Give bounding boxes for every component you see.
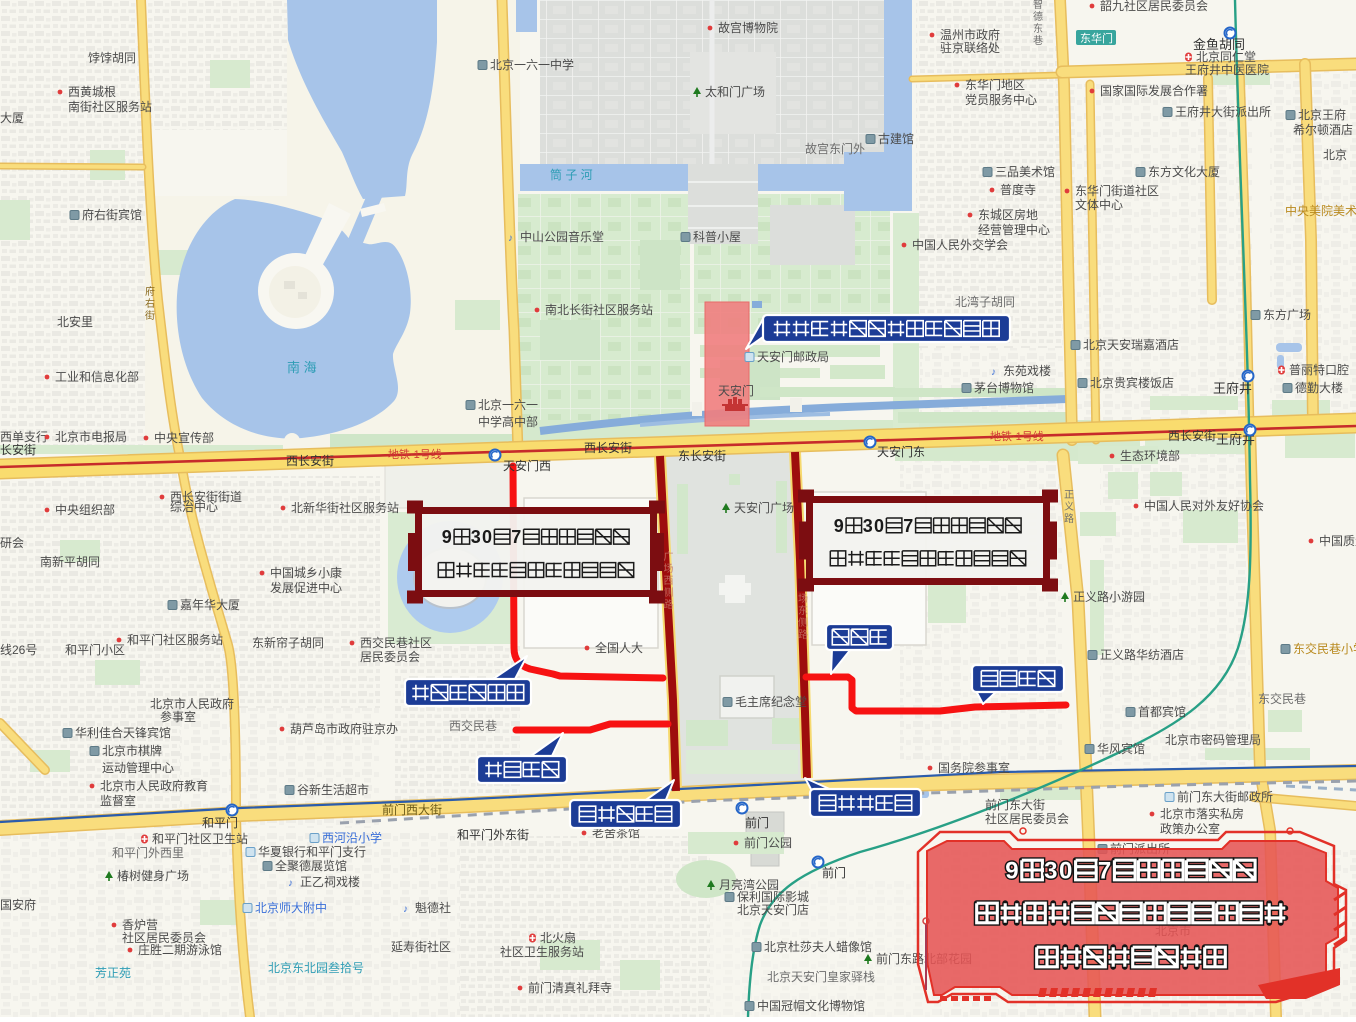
svg-text:3: 3 — [471, 527, 481, 547]
svg-text:♪: ♪ — [508, 233, 513, 244]
svg-text:路: 路 — [1064, 512, 1074, 525]
svg-text:工业和信息化部: 工业和信息化部 — [55, 369, 139, 384]
svg-text:庄胜二期游泳馆: 庄胜二期游泳馆 — [138, 942, 222, 957]
svg-text:西黄城根: 西黄城根 — [68, 85, 116, 99]
svg-text:驻京联络处: 驻京联络处 — [940, 40, 1000, 55]
svg-text:国家国际发展合作署: 国家国际发展合作署 — [1100, 83, 1208, 98]
svg-text:前门东大街: 前门东大街 — [985, 797, 1045, 812]
svg-text:西长安街: 西长安街 — [584, 440, 632, 455]
svg-text:王府井大街派出所: 王府井大街派出所 — [1175, 104, 1271, 119]
svg-text:西交民巷社区: 西交民巷社区 — [360, 635, 432, 650]
svg-text:王府井: 王府井 — [1213, 381, 1252, 396]
svg-text:居民委员会: 居民委员会 — [360, 650, 420, 664]
svg-text:华风宾馆: 华风宾馆 — [1097, 741, 1145, 756]
svg-text:正: 正 — [1064, 490, 1074, 501]
svg-text:故宫东门外: 故宫东门外 — [805, 141, 865, 156]
svg-text:椿树健身广场: 椿树健身广场 — [117, 868, 189, 883]
svg-text:保利国际影城: 保利国际影城 — [737, 890, 809, 904]
svg-text:北京贵宾楼饭店: 北京贵宾楼饭店 — [1090, 375, 1174, 390]
svg-text:东华门: 东华门 — [1080, 31, 1113, 45]
svg-text:天安门邮政局: 天安门邮政局 — [757, 349, 829, 364]
svg-text:毛主席纪念堂: 毛主席纪念堂 — [735, 694, 807, 709]
svg-text:三品美术馆: 三品美术馆 — [995, 164, 1055, 179]
svg-text:线26号: 线26号 — [0, 643, 37, 657]
svg-text:和平门外东街: 和平门外东街 — [457, 827, 529, 842]
svg-text:东城区房地: 东城区房地 — [978, 207, 1038, 222]
svg-text:和平门社区服务站: 和平门社区服务站 — [127, 632, 223, 647]
svg-text:西: 西 — [664, 576, 674, 587]
svg-text:北京同仁堂: 北京同仁堂 — [1196, 50, 1256, 64]
svg-text:府: 府 — [145, 285, 155, 298]
svg-text:♪: ♪ — [288, 878, 293, 889]
svg-text:大厦: 大厦 — [0, 111, 24, 125]
svg-text:魁德社: 魁德社 — [415, 900, 451, 915]
svg-text:东华门地区: 东华门地区 — [965, 77, 1025, 92]
svg-text:南街社区服务站: 南街社区服务站 — [68, 99, 152, 114]
svg-text:北安里: 北安里 — [57, 314, 93, 329]
svg-text:中国人民对外友好协会: 中国人民对外友好协会 — [1144, 498, 1264, 513]
svg-text:饽饽胡同: 饽饽胡同 — [88, 51, 136, 65]
svg-text:前门公园: 前门公园 — [744, 835, 792, 850]
svg-text:7: 7 — [511, 527, 521, 547]
svg-text:北新华街社区服务站: 北新华街社区服务站 — [291, 500, 399, 515]
svg-text:地铁·1号线: 地铁·1号线 — [388, 447, 442, 461]
svg-text:北京: 北京 — [1323, 148, 1347, 162]
svg-text:9: 9 — [442, 527, 452, 547]
svg-text:希尔顿酒店: 希尔顿酒店 — [1293, 122, 1353, 137]
svg-text:9: 9 — [1005, 858, 1018, 885]
svg-text:和平门社区卫生站: 和平门社区卫生站 — [152, 831, 248, 846]
svg-text:北京师大附中: 北京师大附中 — [255, 900, 327, 915]
svg-text:前门西大街: 前门西大街 — [382, 802, 442, 817]
svg-text:社区居民委员会: 社区居民委员会 — [985, 811, 1069, 826]
svg-text:东: 东 — [1033, 22, 1043, 35]
svg-text:北京天安门店: 北京天安门店 — [737, 902, 809, 917]
svg-text:北火扇: 北火扇 — [540, 930, 576, 945]
svg-text:参事室: 参事室 — [160, 709, 196, 724]
svg-text:中央美院美术馆: 中央美院美术馆 — [1285, 203, 1356, 218]
svg-text:天安门西: 天安门西 — [503, 458, 551, 473]
svg-text:东方广场: 东方广场 — [1263, 307, 1311, 322]
svg-text:场: 场 — [664, 562, 674, 575]
svg-text:路: 路 — [798, 628, 808, 641]
svg-text:义: 义 — [1064, 501, 1074, 513]
svg-text:中央组织部: 中央组织部 — [55, 502, 115, 517]
svg-text:北京市人民政府: 北京市人民政府 — [150, 696, 234, 711]
svg-text:中国人民外交学会: 中国人民外交学会 — [912, 237, 1008, 252]
svg-text:3: 3 — [863, 516, 873, 536]
svg-text:葫芦岛市政府驻京办: 葫芦岛市政府驻京办 — [290, 721, 398, 736]
svg-text:前门东大街邮政所: 前门东大街邮政所 — [1177, 789, 1273, 804]
svg-text:和平门: 和平门 — [202, 815, 238, 830]
svg-text:正乙祠戏楼: 正乙祠戏楼 — [300, 874, 360, 889]
svg-text:中国质量: 中国质量 — [1319, 533, 1356, 548]
svg-text:德: 德 — [1033, 10, 1043, 23]
svg-text:韶九社区居民委员会: 韶九社区居民委员会 — [1100, 0, 1208, 13]
svg-text:0: 0 — [874, 516, 884, 536]
svg-text:地铁·1号线: 地铁·1号线 — [990, 429, 1044, 443]
svg-text:街: 街 — [145, 309, 155, 322]
svg-text:文体中心: 文体中心 — [1075, 197, 1123, 212]
svg-text:中学高中部: 中学高中部 — [478, 414, 538, 429]
svg-text:延寿街社区: 延寿街社区 — [391, 939, 451, 954]
svg-text:北京一六一中学: 北京一六一中学 — [490, 57, 574, 72]
svg-text:监督室: 监督室 — [100, 793, 136, 808]
svg-text:政策办公室: 政策办公室 — [1160, 821, 1220, 836]
svg-text:长安街: 长安街 — [0, 442, 36, 457]
svg-text:♪: ♪ — [403, 904, 408, 915]
svg-text:和平门小区: 和平门小区 — [65, 642, 125, 657]
svg-text:普丽特口腔: 普丽特口腔 — [1289, 362, 1349, 377]
svg-text:王府井中医医院: 王府井中医医院 — [1185, 62, 1269, 77]
svg-text:智: 智 — [1033, 0, 1043, 11]
svg-text:北京市人民政府教育: 北京市人民政府教育 — [100, 778, 208, 793]
svg-text:经营管理中心: 经营管理中心 — [978, 222, 1050, 237]
svg-text:北京市电报局: 北京市电报局 — [55, 429, 127, 444]
svg-text:国务院参事室: 国务院参事室 — [938, 760, 1010, 775]
svg-text:北湾子胡同: 北湾子胡同 — [955, 294, 1015, 309]
svg-text:西单支行: 西单支行 — [0, 430, 48, 444]
svg-text:前门: 前门 — [822, 865, 846, 880]
svg-text:♪: ♪ — [991, 367, 996, 378]
svg-text:东: 东 — [798, 604, 808, 617]
svg-text:发展促进中心: 发展促进中心 — [270, 580, 342, 595]
svg-text:南北长街社区服务站: 南北长街社区服务站 — [545, 302, 653, 317]
svg-text:太和门广场: 太和门广场 — [705, 84, 765, 99]
svg-text:东新帘子胡同: 东新帘子胡同 — [252, 635, 324, 650]
svg-text:北京王府: 北京王府 — [1298, 107, 1346, 122]
svg-text:国安府: 国安府 — [0, 897, 36, 912]
svg-text:0: 0 — [482, 527, 492, 547]
svg-text:华夏银行和平门支行: 华夏银行和平门支行 — [258, 844, 366, 859]
svg-text:中国冠帽文化博物馆: 中国冠帽文化博物馆 — [757, 998, 865, 1013]
svg-text:首都宾馆: 首都宾馆 — [1138, 704, 1186, 719]
svg-text:右: 右 — [145, 297, 155, 310]
svg-text:南 海: 南 海 — [287, 360, 317, 375]
svg-text:古建馆: 古建馆 — [878, 131, 914, 146]
svg-text:前门: 前门 — [745, 815, 769, 830]
svg-text:广: 广 — [664, 551, 674, 563]
svg-text:北京东北园叁拾号: 北京东北园叁拾号 — [268, 960, 364, 975]
svg-text:0: 0 — [1059, 858, 1072, 885]
svg-text:西交民巷: 西交民巷 — [449, 718, 497, 733]
svg-text:前门清真礼拜寺: 前门清真礼拜寺 — [528, 980, 612, 995]
svg-text:东交民巷小学: 东交民巷小学 — [1293, 641, 1356, 656]
svg-text:全聚德展览馆: 全聚德展览馆 — [275, 858, 347, 873]
svg-text:社区卫生服务站: 社区卫生服务站 — [500, 944, 584, 959]
svg-text:正义路华纺酒店: 正义路华纺酒店 — [1100, 647, 1184, 662]
svg-text:东交民巷: 东交民巷 — [1258, 691, 1306, 706]
svg-text:中央宣传部: 中央宣传部 — [154, 430, 214, 445]
svg-text:茅台博物馆: 茅台博物馆 — [974, 380, 1034, 395]
svg-text:研会: 研会 — [0, 536, 24, 550]
svg-text:正义路小游园: 正义路小游园 — [1073, 589, 1145, 604]
svg-text:东方文化大厦: 东方文化大厦 — [1148, 164, 1220, 179]
svg-text:西长安街: 西长安街 — [286, 453, 334, 468]
svg-text:全国人大: 全国人大 — [595, 640, 643, 655]
svg-text:天安门: 天安门 — [718, 383, 754, 398]
svg-text:府右街宾馆: 府右街宾馆 — [82, 207, 142, 222]
svg-text:东华门街道社区: 东华门街道社区 — [1075, 183, 1159, 198]
svg-text:故宫博物院: 故宫博物院 — [718, 20, 778, 35]
svg-text:运动管理中心: 运动管理中心 — [102, 760, 174, 775]
svg-text:北京市密码管理局: 北京市密码管理局 — [1165, 732, 1261, 747]
svg-text:生态环境部: 生态环境部 — [1120, 448, 1180, 463]
svg-text:党员服务中心: 党员服务中心 — [965, 92, 1037, 107]
svg-text:北京天安门皇家驿栈: 北京天安门皇家驿栈 — [767, 969, 875, 984]
svg-text:侧: 侧 — [798, 616, 808, 629]
svg-text:东苑戏楼: 东苑戏楼 — [1003, 363, 1051, 378]
svg-text:北京市棋牌: 北京市棋牌 — [102, 743, 162, 758]
svg-text:北京一六一: 北京一六一 — [478, 398, 538, 412]
svg-text:筒 子 河: 筒 子 河 — [550, 167, 593, 182]
svg-text:北京天安瑞嘉酒店: 北京天安瑞嘉酒店 — [1083, 337, 1179, 352]
svg-text:巷: 巷 — [1033, 35, 1043, 47]
svg-text:7: 7 — [1098, 858, 1111, 885]
svg-text:东长安街: 东长安街 — [678, 448, 726, 463]
svg-text:温州市政府: 温州市政府 — [940, 27, 1000, 42]
svg-text:西河沿小学: 西河沿小学 — [322, 830, 382, 845]
svg-text:华利佳合天锋宾馆: 华利佳合天锋宾馆 — [75, 725, 171, 740]
svg-text:3: 3 — [1044, 858, 1057, 885]
svg-text:场: 场 — [798, 592, 808, 605]
svg-text:综治中心: 综治中心 — [170, 499, 218, 514]
svg-text:北京市落实私房: 北京市落实私房 — [1160, 806, 1244, 821]
svg-text:和平门外西里: 和平门外西里 — [112, 845, 184, 860]
svg-text:谷新生活超市: 谷新生活超市 — [297, 782, 369, 797]
svg-text:中国城乡小康: 中国城乡小康 — [270, 565, 342, 580]
svg-text:香炉营: 香炉营 — [122, 918, 158, 932]
svg-text:天安门广场: 天安门广场 — [734, 500, 794, 515]
svg-text:嘉年华大厦: 嘉年华大厦 — [180, 598, 240, 612]
svg-text:科普小屋: 科普小屋 — [693, 230, 741, 244]
svg-text:7: 7 — [903, 516, 913, 536]
svg-text:9: 9 — [834, 516, 844, 536]
svg-text:北京杜莎夫人蜡像馆: 北京杜莎夫人蜡像馆 — [764, 939, 872, 954]
svg-text:南新平胡同: 南新平胡同 — [40, 554, 100, 569]
svg-text:中山公园音乐堂: 中山公园音乐堂 — [520, 229, 604, 244]
svg-text:西长安街: 西长安街 — [1168, 428, 1216, 443]
svg-text:德勤大楼: 德勤大楼 — [1295, 380, 1343, 395]
svg-text:芳正苑: 芳正苑 — [95, 966, 131, 980]
svg-text:天安门东: 天安门东 — [877, 444, 925, 459]
svg-text:普度寺: 普度寺 — [1000, 182, 1036, 197]
